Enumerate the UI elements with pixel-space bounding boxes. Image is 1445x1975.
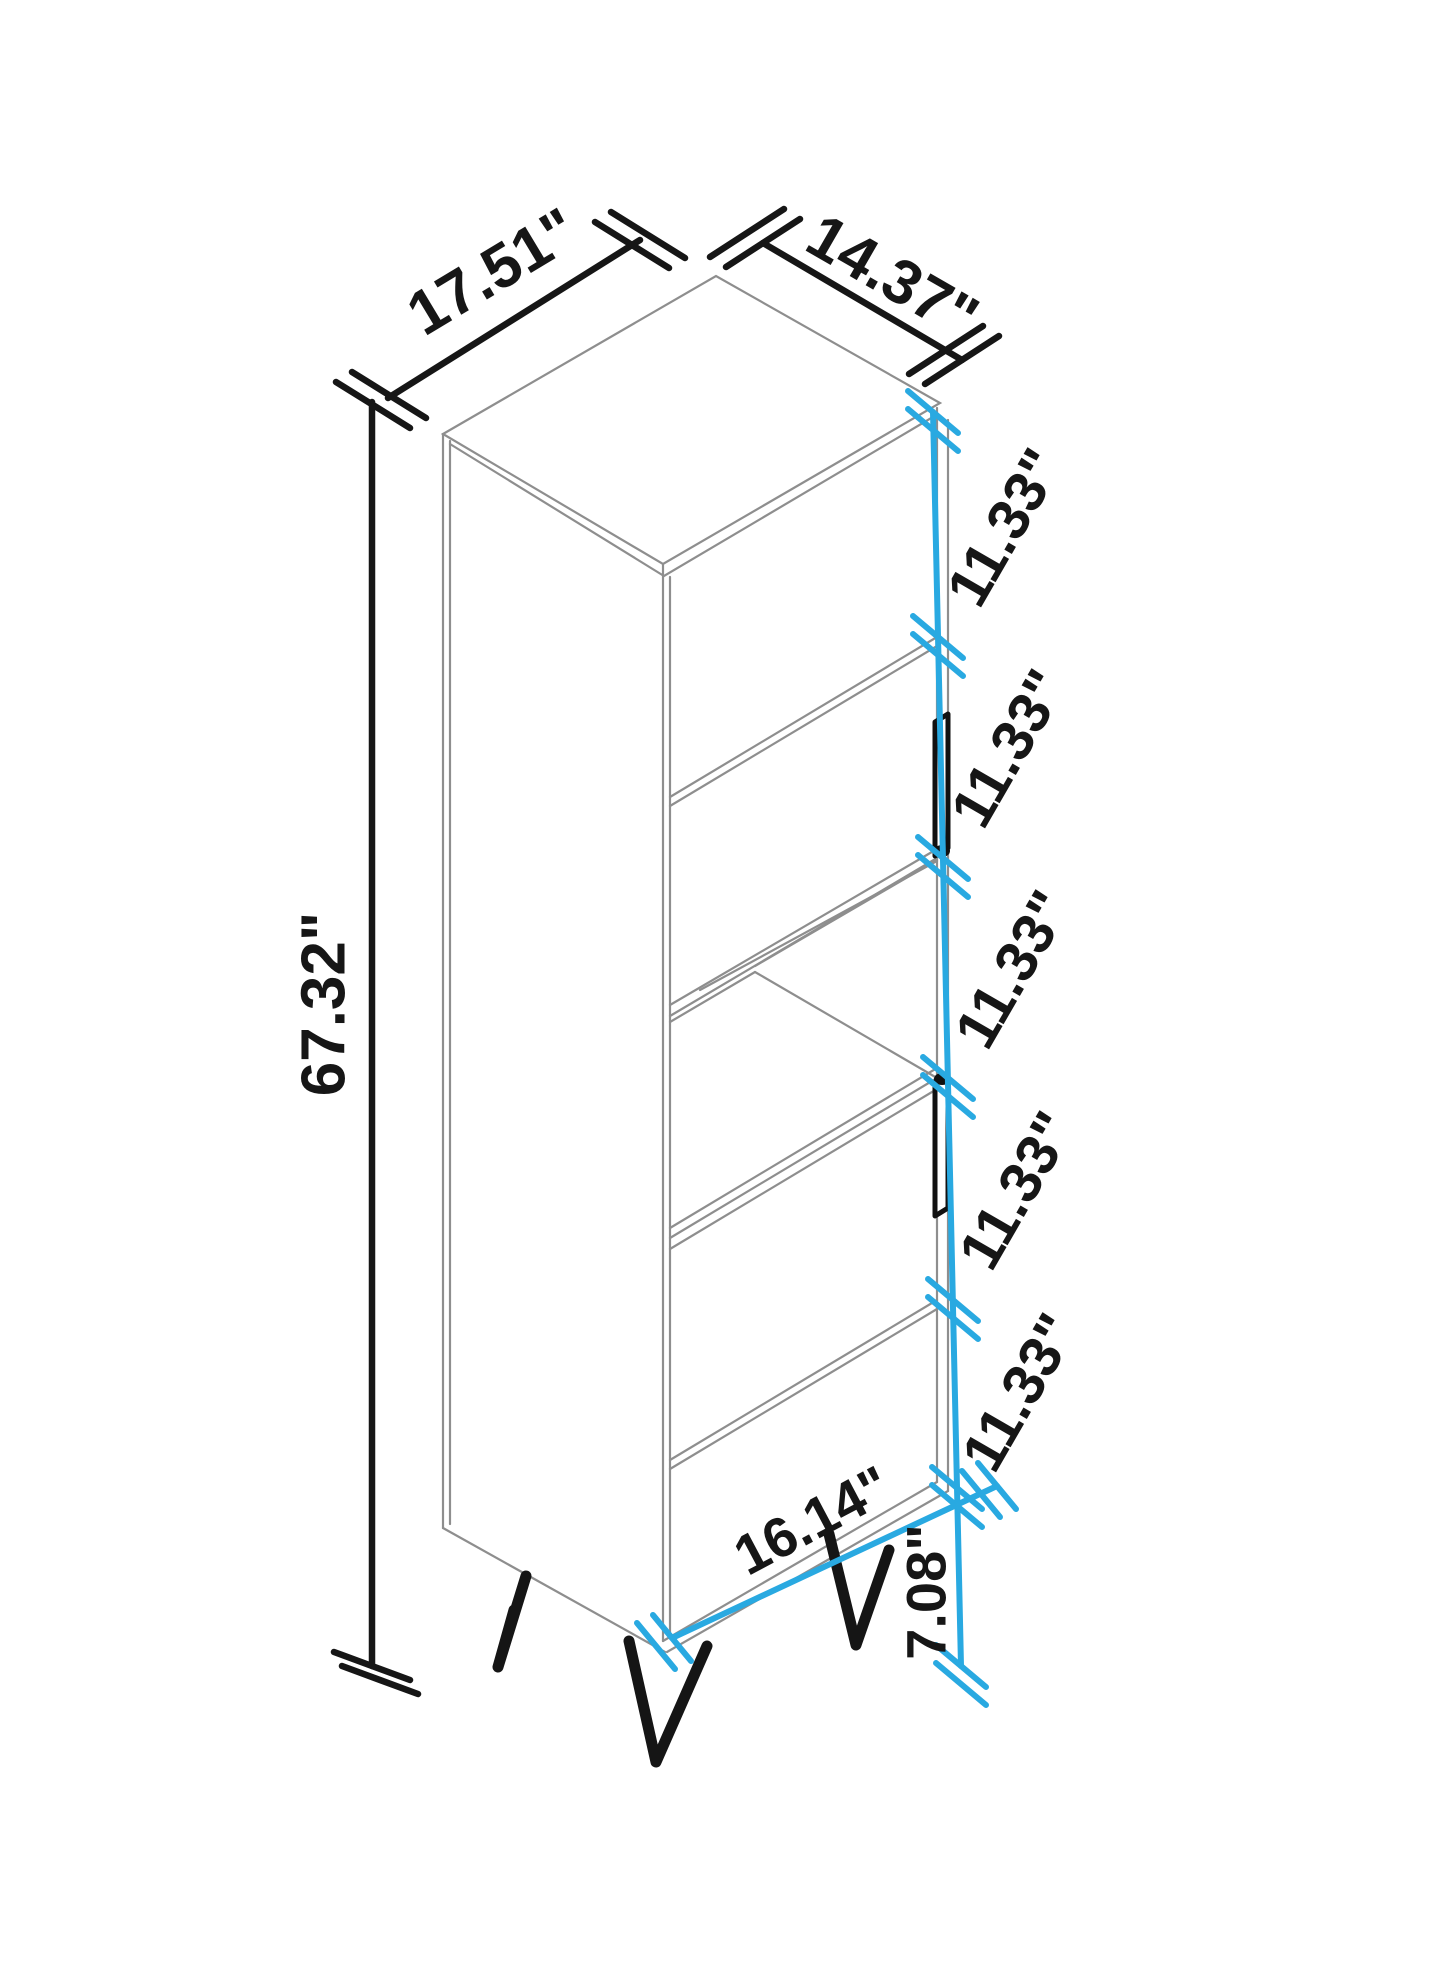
width-label: 17.51": [396, 195, 590, 349]
section-label-4: 11.33": [946, 1101, 1087, 1280]
hairpin-legs: [498, 1534, 889, 1762]
left-face-bottom-edge: [443, 1528, 665, 1652]
technical-drawing-canvas: 17.51" 14.37" 67.32" 11.33" 11.33" 11.33…: [0, 0, 1445, 1975]
top-panel-thickness: [450, 414, 938, 576]
bottom-width-label: 16.14": [724, 1453, 901, 1587]
leg-height-label: 7.08": [895, 1524, 958, 1660]
divider-1: [670, 637, 937, 806]
shelf-right-diagonal: [755, 972, 937, 1078]
open-shelf-interior: [670, 860, 937, 1078]
divider-4: [670, 1300, 937, 1469]
cabinet-outline: [443, 276, 948, 1652]
bookcase-dimension-diagram: 17.51" 14.37" 67.32" 11.33" 11.33" 11.33…: [0, 0, 1445, 1975]
dimension-labels: 17.51" 14.37" 67.32" 11.33" 11.33" 11.33…: [290, 195, 1091, 1660]
hairpin-leg-back-left: [498, 1576, 526, 1667]
height-tick-bottom: [334, 1652, 418, 1694]
section-label-2: 11.33": [938, 659, 1079, 838]
height-label: 67.32": [290, 912, 359, 1097]
divider-2: [670, 849, 937, 1016]
back-panel-top-line: [755, 860, 937, 966]
section-label-1: 11.33": [934, 438, 1075, 617]
depth-label: 14.37": [795, 201, 989, 353]
divider-3: [670, 1068, 937, 1249]
section-label-3: 11.33": [942, 880, 1083, 1059]
